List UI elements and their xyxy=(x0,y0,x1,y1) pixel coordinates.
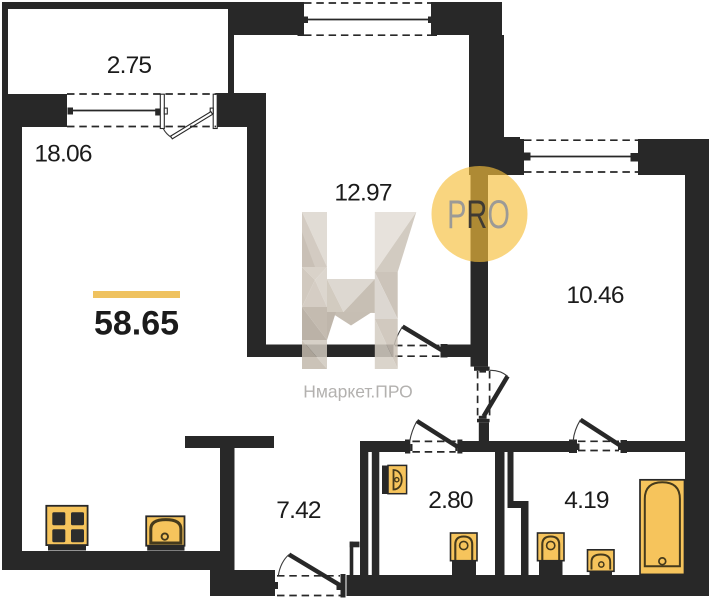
svg-text:18.06: 18.06 xyxy=(34,141,91,168)
svg-text:10.46: 10.46 xyxy=(566,282,623,309)
svg-text:PRO: PRO xyxy=(447,193,510,238)
svg-text:7.42: 7.42 xyxy=(276,497,321,524)
svg-text:2.75: 2.75 xyxy=(107,52,152,79)
svg-text:4.19: 4.19 xyxy=(564,487,609,514)
svg-text:2.80: 2.80 xyxy=(428,487,473,514)
svg-text:Нмаркет.ПРО: Нмаркет.ПРО xyxy=(303,382,413,402)
svg-text:12.97: 12.97 xyxy=(334,180,391,207)
svg-text:58.65: 58.65 xyxy=(94,305,179,343)
